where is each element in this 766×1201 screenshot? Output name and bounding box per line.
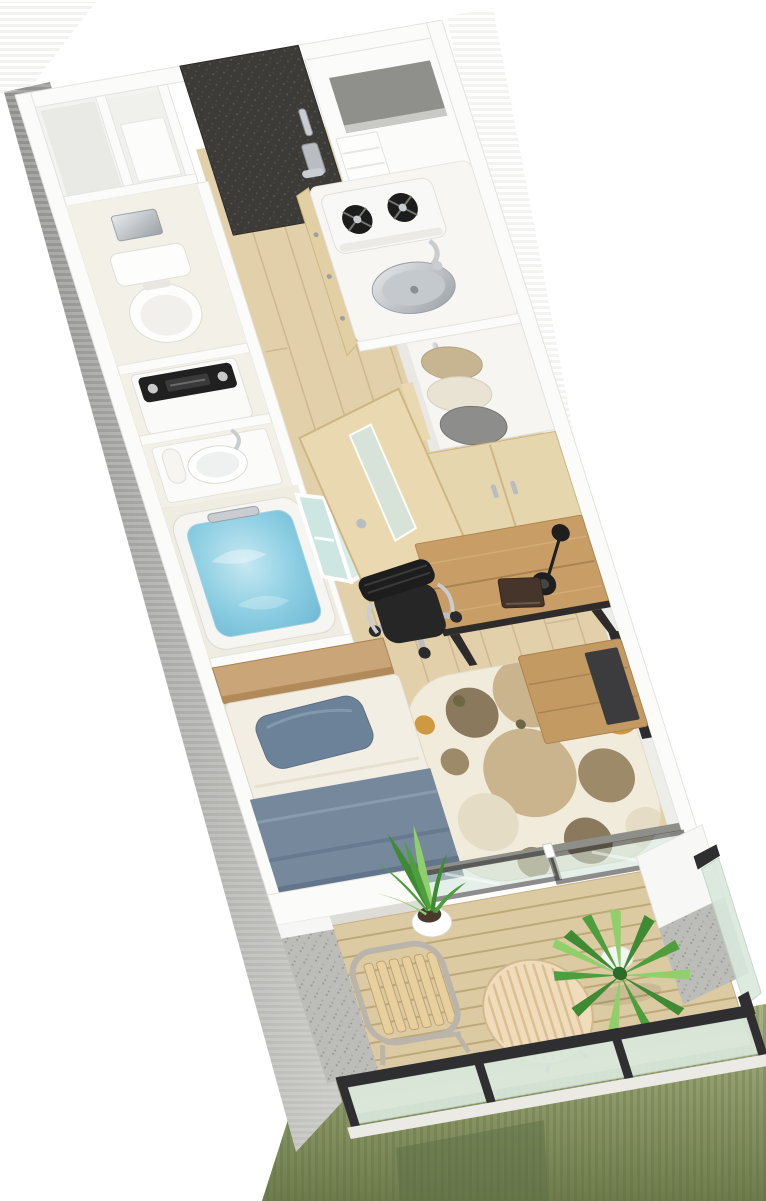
floorplan-stage	[0, 0, 766, 1201]
notebook	[498, 578, 545, 608]
floorplan-render	[0, 0, 766, 1201]
